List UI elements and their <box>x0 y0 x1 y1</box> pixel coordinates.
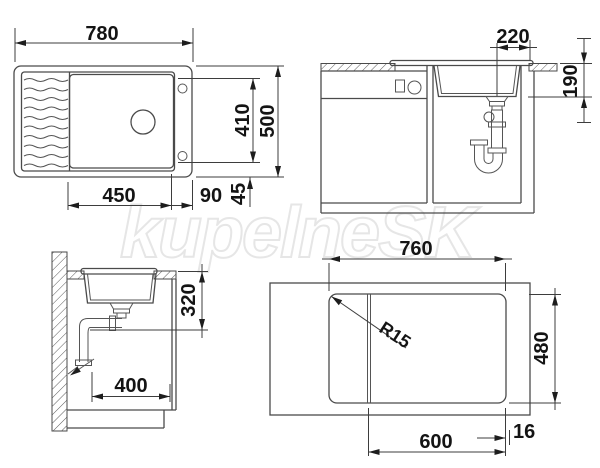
side-section-view: 320 400 <box>52 252 208 431</box>
countertop-hatch-left <box>321 64 395 72</box>
dim-corner-radius-label: R15 <box>376 318 415 353</box>
sink-rim-profile <box>390 61 533 66</box>
bowl-section-outer <box>434 66 520 97</box>
dim-bowl-depth-label: 410 <box>232 103 254 136</box>
dim-overall-width-label: 780 <box>85 23 118 45</box>
bowl-outline <box>70 75 174 169</box>
cutout-view: R15 760 480 600 16 <box>270 238 561 456</box>
dim-drain-height-label: 320 <box>178 283 200 316</box>
drain-piping <box>68 303 133 374</box>
tap-hole-top <box>178 84 187 93</box>
sink-outline-top <box>14 66 192 177</box>
dim-cutout-depth-label: 480 <box>531 331 553 364</box>
wall-hatch <box>52 252 67 431</box>
siphon-trap <box>471 97 509 174</box>
technical-drawing-sheet: kupelneSK 780 <box>0 0 600 468</box>
dim-bowl-section-width-label: 600 <box>419 431 452 453</box>
drain-hole <box>131 110 155 134</box>
dim-bowl-to-edge-label: 90 <box>200 185 222 207</box>
sink-dimension-drawing: 780 410 <box>0 0 600 468</box>
sink-rim-inner <box>22 72 175 171</box>
dim-bowl-width-label: 450 <box>102 185 135 207</box>
drainboard-waves <box>24 79 68 168</box>
tap-hole-bottom <box>178 152 187 161</box>
dim-cutout-width-label: 760 <box>399 238 432 260</box>
bowl-side-outer <box>84 274 156 303</box>
sink-rim-profile-side <box>81 269 157 275</box>
bowl-section-inner <box>438 66 517 94</box>
bowl-side-inner <box>88 274 154 300</box>
cutout-outline <box>329 294 506 403</box>
dim-drain-to-edge-label: 220 <box>496 26 529 48</box>
dim-edge-margin-label: 16 <box>513 421 535 443</box>
front-section-view: 220 190 <box>321 26 592 213</box>
appliance-knob <box>408 81 421 94</box>
plan-view: 780 410 <box>14 23 284 210</box>
dim-wall-to-drain-label: 400 <box>114 375 147 397</box>
dim-edge-radius-label: 45 <box>228 183 250 205</box>
appliance-button <box>396 80 405 92</box>
dim-bowl-height-label: 190 <box>560 64 582 97</box>
dim-overall-depth-label: 500 <box>257 104 279 137</box>
